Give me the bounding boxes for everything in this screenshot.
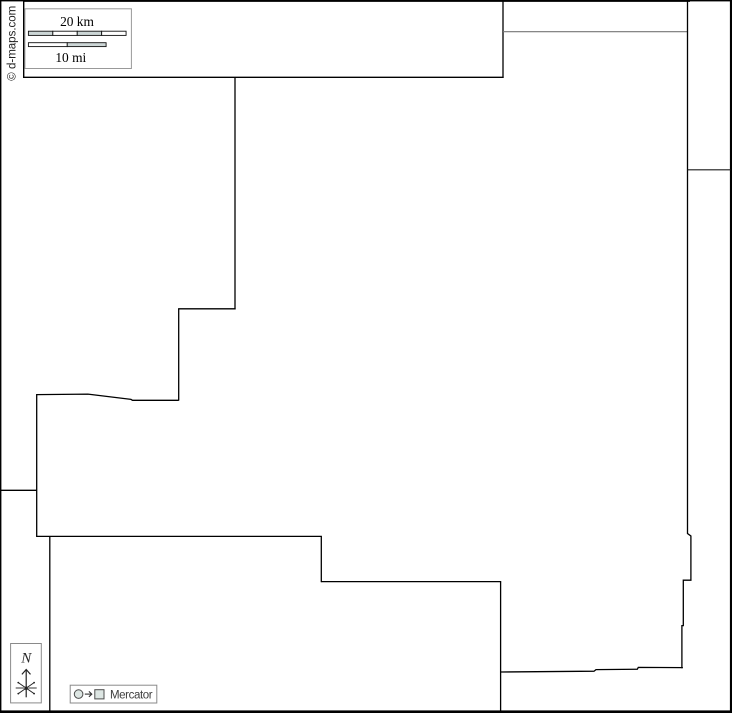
svg-text:10 mi: 10 mi	[55, 50, 86, 65]
svg-text:20 km: 20 km	[60, 14, 94, 29]
svg-text:© d-maps.com: © d-maps.com	[6, 6, 18, 81]
svg-text:N: N	[20, 651, 32, 667]
svg-text:Mercator: Mercator	[110, 690, 153, 702]
